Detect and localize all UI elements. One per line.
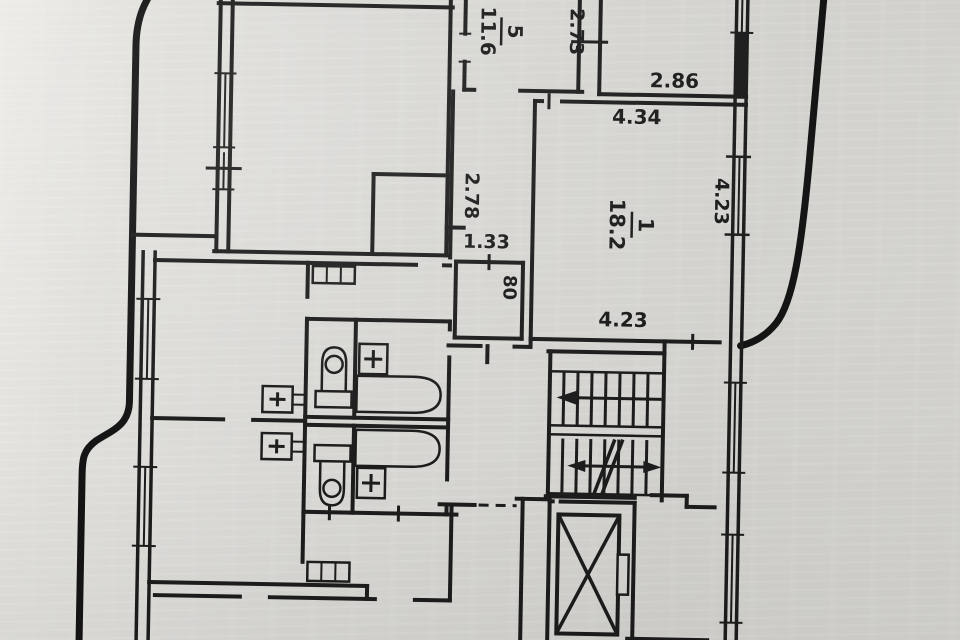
photo-vignette [0, 0, 960, 640]
floor-plan-photo: 5 11.6 1 18.2 2.73 2.78 4.23 80 [0, 0, 960, 640]
